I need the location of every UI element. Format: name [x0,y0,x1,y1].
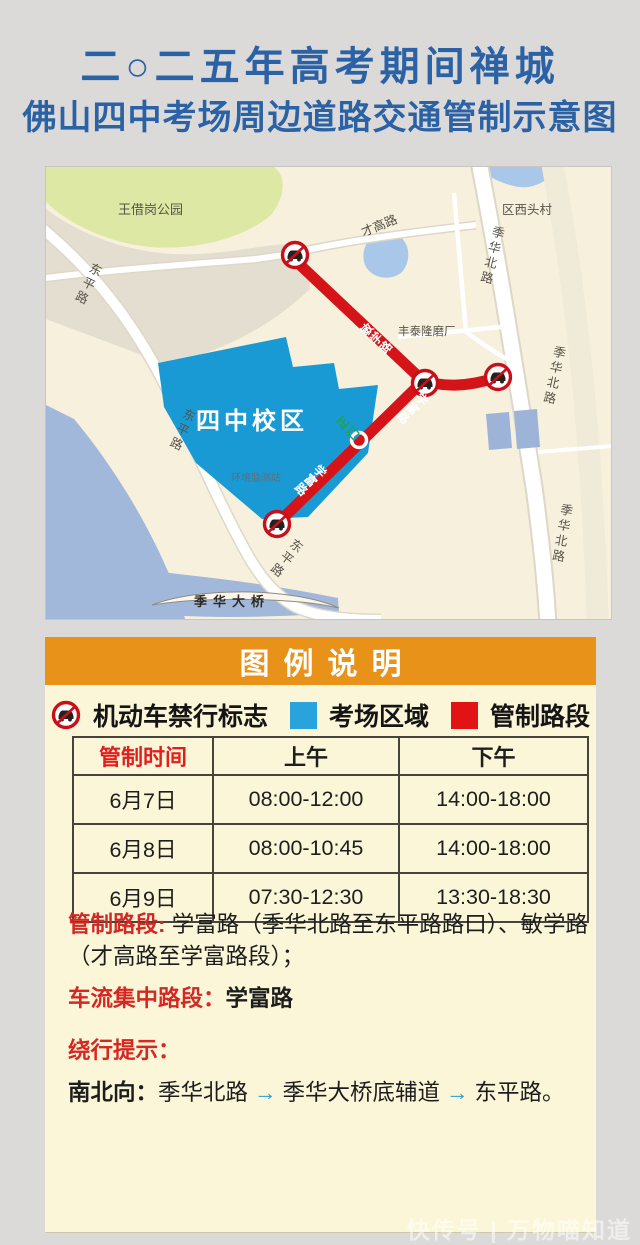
legend-label-no-entry: 机动车禁行标志 [93,697,268,733]
no-entry-sign-east [486,365,511,390]
cell-am: 08:00-10:45 [213,824,399,873]
bridge-label: 季华大桥 [194,591,270,610]
traffic-flow-text: 学富路 [226,986,294,1011]
map-canvas [46,167,611,619]
cell-date: 6月8日 [73,824,213,873]
table-row-jun8: 6月8日 08:00-10:45 14:00-18:00 [73,824,588,873]
page-title-line1: 二○二五年高考期间禅城 [0,34,640,92]
page-title-line2: 佛山四中考场周边道路交通管制示意图 [0,90,640,139]
cell-pm: 14:00-18:00 [399,824,588,873]
legend-header: 图例说明 [45,637,596,685]
table-header-am: 上午 [213,737,399,775]
cell-pm: 14:00-18:00 [399,775,588,824]
route-segment-3: 东平路。 [475,1080,565,1105]
station-label: 环境监测站 [231,469,281,484]
restricted-roads-label: 管制路段: [68,912,166,937]
route-arrow-icon: → [248,1080,283,1105]
traffic-flow-note: 车流集中路段：学富路 [68,983,588,1015]
route-arrow-icon: → [440,1080,475,1105]
detour-route-line: 南北向：季华北路→季华大桥底辅道→东平路。 [68,1077,588,1109]
park-label: 王借岗公园 [118,199,183,218]
legend-label-exam-area: 考场区域 [329,697,429,733]
watermark: 快传号 | 万物喵知道 [407,1211,632,1245]
table-header-row: 管制时间 上午 下午 [73,737,588,775]
restricted-roads-note: 管制路段: 学富路（季华北路至东平路路口）、敏学路（才高路至学富路段）； [68,909,588,973]
no-entry-sign-south [265,512,290,537]
building-block-1 [486,412,512,450]
building-block-2 [514,409,540,449]
cell-am: 08:00-12:00 [213,775,399,824]
cell-date: 6月7日 [73,775,213,824]
factory-label: 丰泰隆磨厂 [398,323,456,339]
no-entry-icon [51,700,81,730]
no-entry-sign-north [283,243,308,268]
legend-items: 机动车禁行标志 考场区域 管制路段 [45,697,596,733]
table-row-jun7: 6月7日 08:00-12:00 14:00-18:00 [73,775,588,824]
exam-area-swatch [290,702,317,729]
legend-panel: 图例说明 机动车禁行标志 考场区域 管制路段 管制时间 上午 下午 6月7日 0… [45,637,596,1233]
notes-block: 管制路段: 学富路（季华北路至东平路路口）、敏学路（才高路至学富路段）； 车流集… [68,909,588,1119]
detour-tip-label: 绕行提示： [68,1038,181,1063]
direction-label: 南北向： [68,1080,158,1105]
table-header-time: 管制时间 [73,737,213,775]
village-label: 区西头村 [502,199,552,218]
legend-label-restricted: 管制路段 [490,697,590,733]
traffic-flow-label: 车流集中路段： [68,986,226,1011]
route-segment-2: 季华大桥底辅道 [283,1080,441,1105]
school-area-label: 四中校区 [196,401,308,436]
route-segment-1: 季华北路 [158,1080,248,1105]
control-time-table: 管制时间 上午 下午 6月7日 08:00-12:00 14:00-18:00 … [72,736,589,923]
table-header-pm: 下午 [399,737,588,775]
detour-tip-heading: 绕行提示： [68,1035,588,1067]
traffic-control-map: 王借岗公园 区西头村 才高路 季华北路 季华北路 季华北路 丰泰隆磨厂 东平路 … [45,166,612,620]
restricted-road-swatch [451,702,478,729]
